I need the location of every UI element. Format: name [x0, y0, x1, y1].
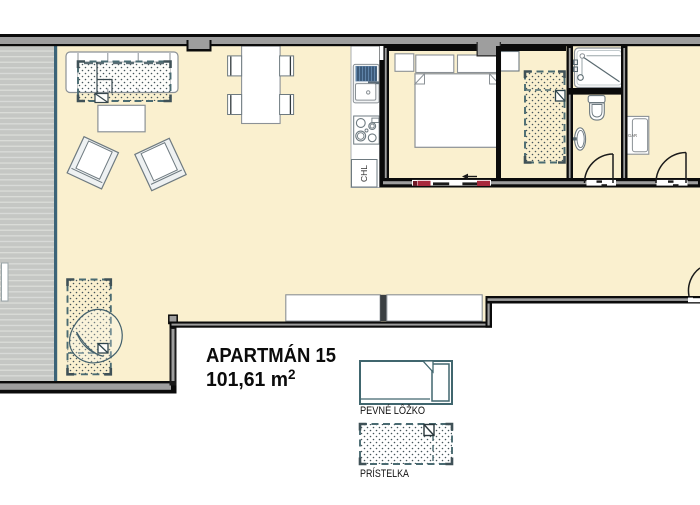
svg-text:APARTMÁN 15: APARTMÁN 15: [206, 344, 336, 367]
svg-text:101,61 m2: 101,61 m2: [206, 367, 296, 391]
svg-text:PEVNÉ LÔŽKO: PEVNÉ LÔŽKO: [360, 404, 425, 417]
svg-text:CHL: CHL: [359, 165, 369, 182]
svg-text:GAR: GAR: [628, 133, 637, 138]
svg-text:PRÍSTELKA: PRÍSTELKA: [360, 467, 410, 480]
